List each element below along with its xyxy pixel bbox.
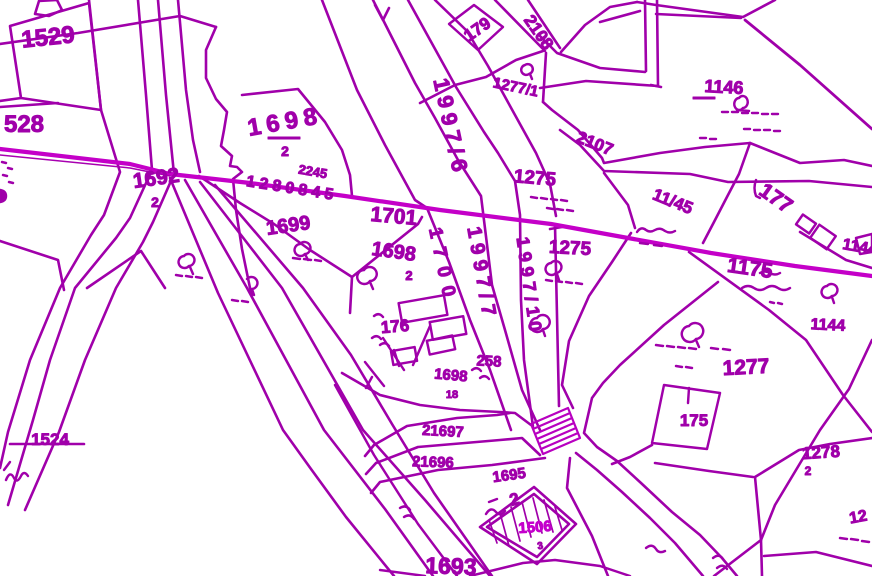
svg-text:1144: 1144 [810,316,846,335]
svg-text:2: 2 [405,268,412,283]
svg-text:2: 2 [281,143,289,159]
svg-text:2: 2 [151,194,159,210]
svg-text:12: 12 [848,508,869,528]
svg-text:2: 2 [805,464,812,478]
svg-text:528: 528 [4,111,44,138]
svg-text:1275: 1275 [513,166,557,191]
svg-text:1693: 1693 [425,552,477,576]
svg-text:21697: 21697 [422,422,465,441]
svg-text:1701: 1701 [370,203,419,230]
svg-text:1146: 1146 [704,76,744,98]
svg-text:21696: 21696 [412,453,454,471]
svg-text:258: 258 [476,352,502,370]
svg-text:1529: 1529 [20,21,76,53]
svg-text:1524: 1524 [31,430,69,449]
svg-text:1278: 1278 [802,442,841,464]
svg-text:1275: 1275 [548,237,592,260]
svg-text:175: 175 [680,411,708,430]
svg-text:1277: 1277 [722,355,770,380]
svg-text:176: 176 [380,316,410,337]
svg-text:18: 18 [446,389,458,401]
svg-text:1506: 1506 [518,518,552,537]
svg-text:1698: 1698 [434,366,469,386]
